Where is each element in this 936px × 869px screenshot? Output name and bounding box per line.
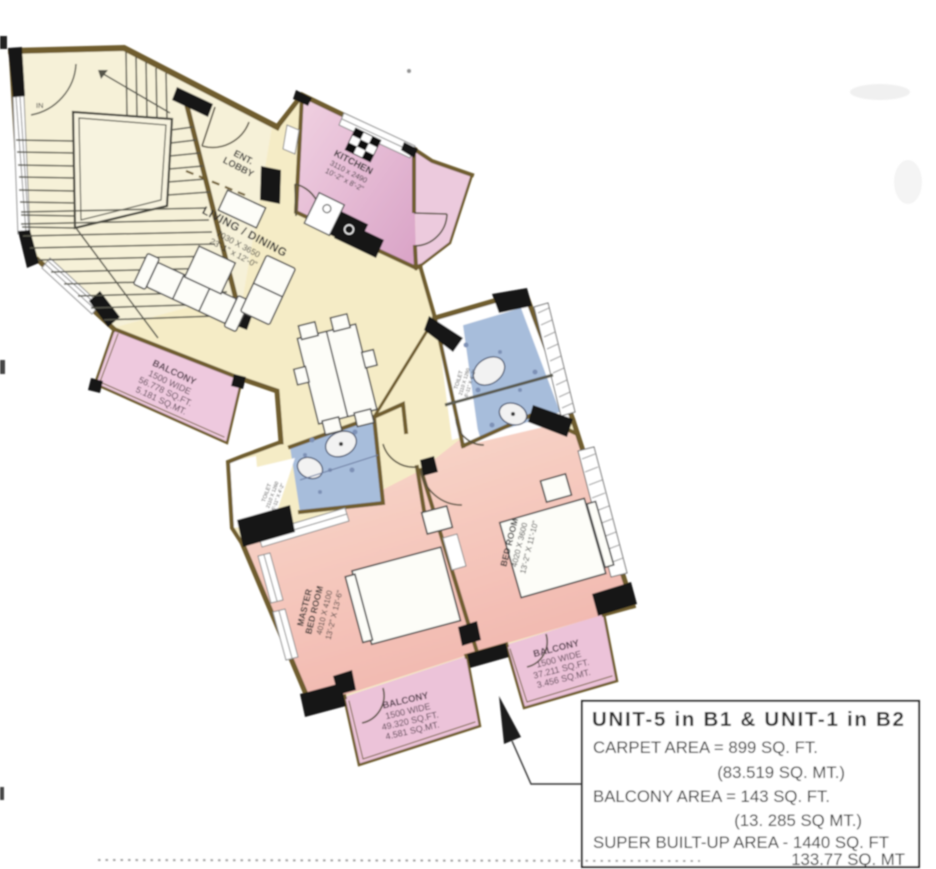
svg-text:(83.519 SQ. MT.): (83.519 SQ. MT.) [717, 763, 845, 782]
svg-text:133.77 SQ. MT: 133.77 SQ. MT [791, 850, 905, 869]
svg-text:CARPET AREA = 899 SQ. FT.: CARPET AREA = 899 SQ. FT. [593, 738, 818, 757]
svg-text:IN: IN [36, 101, 44, 110]
svg-text:UNIT-5 in B1 & UNIT-1 in B2: UNIT-5 in B1 & UNIT-1 in B2 [592, 708, 906, 731]
svg-text:(13. 285 SQ MT.): (13. 285 SQ MT.) [734, 811, 862, 830]
svg-text:BALCONY AREA = 143 SQ. FT.: BALCONY AREA = 143 SQ. FT. [593, 787, 830, 806]
